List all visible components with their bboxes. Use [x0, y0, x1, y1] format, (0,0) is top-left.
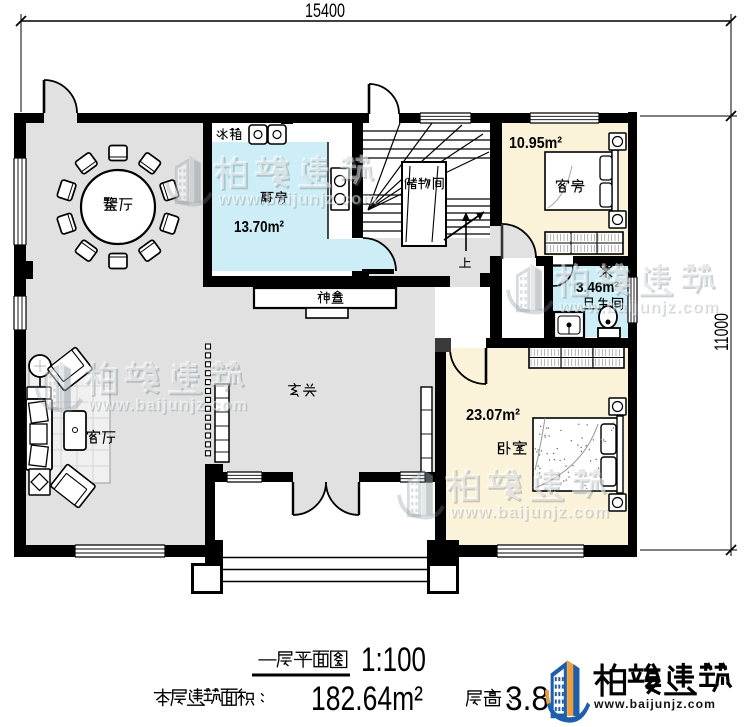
svg-text:11000: 11000: [712, 313, 733, 351]
svg-text:www.baijunjz.com: www.baijunjz.com: [593, 697, 716, 711]
svg-text:www.baijunjz.com: www.baijunjz.com: [558, 298, 719, 316]
svg-text:www.baijunjz.com: www.baijunjz.com: [449, 503, 610, 521]
svg-text:182.64m²: 182.64m²: [311, 680, 423, 718]
svg-text:15400: 15400: [305, 1, 345, 22]
svg-text:www.baijunjz.com: www.baijunjz.com: [217, 190, 378, 208]
svg-text:13.70m²: 13.70m²: [234, 219, 284, 236]
svg-text:10.95m²: 10.95m²: [509, 135, 562, 152]
svg-text:23.07m²: 23.07m²: [466, 407, 520, 424]
svg-text:www.baijunjz.com: www.baijunjz.com: [87, 396, 248, 414]
svg-text:3.8: 3.8: [505, 680, 549, 718]
svg-text:1:100: 1:100: [361, 641, 426, 679]
